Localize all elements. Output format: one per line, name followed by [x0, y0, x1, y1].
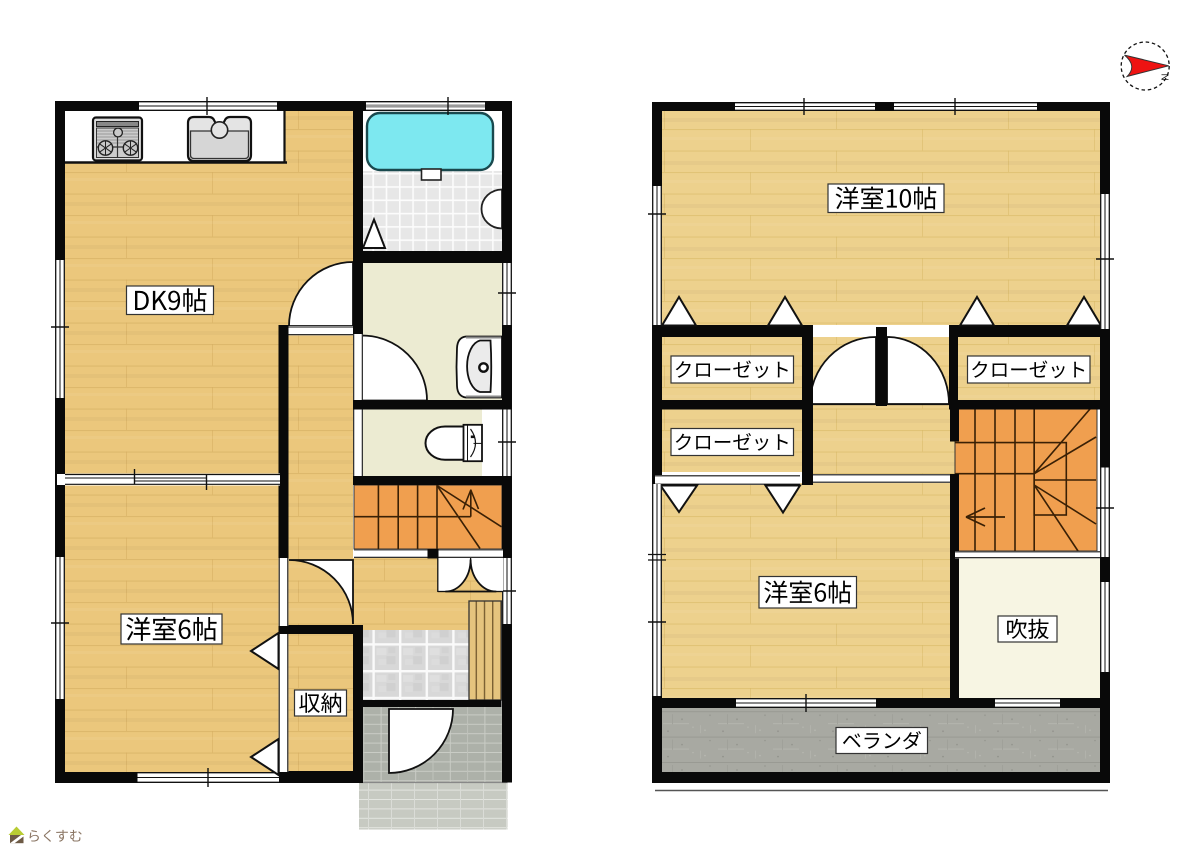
svg-text:N: N — [1159, 74, 1170, 81]
